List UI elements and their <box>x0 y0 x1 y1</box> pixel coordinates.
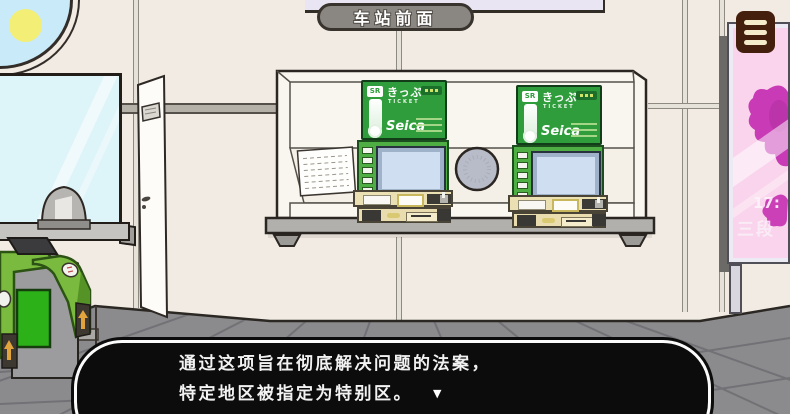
hamburger-icon <box>744 40 767 45</box>
advert-poster[interactable]: 17: 三段 <box>727 22 790 264</box>
receipt-slot[interactable] <box>561 217 593 227</box>
ticket-label: TICKET <box>388 99 420 105</box>
coin-slot[interactable] <box>387 213 400 218</box>
dome-object[interactable] <box>38 187 90 229</box>
location-sign-label: 车站前面 <box>353 5 437 29</box>
station-scene: SR きっぷ TICKET Seica SR きっぷ <box>0 0 790 414</box>
machine-lower-panel <box>512 212 606 228</box>
bill-slot[interactable] <box>397 194 424 207</box>
advance-cursor-icon: ▼ <box>433 382 444 406</box>
speaker-circle[interactable] <box>456 148 498 190</box>
dialog-box[interactable]: 通过这项旨在彻底解决问题的法案， 特定地区被指定为特别区。▼ <box>74 340 711 414</box>
sr-badge: SR <box>522 91 538 102</box>
machine-screen[interactable] <box>531 151 601 200</box>
ticket-gates[interactable] <box>0 238 90 378</box>
machine-screen[interactable] <box>376 146 446 195</box>
change-tray[interactable] <box>437 209 451 221</box>
coin-slot[interactable] <box>542 218 555 223</box>
ic-reader-icon <box>0 291 11 307</box>
hamburger-icon <box>744 20 767 25</box>
poster-leg <box>729 264 742 314</box>
card-slot[interactable] <box>582 199 606 209</box>
door-sign-plate <box>142 103 160 121</box>
ticket-slot[interactable] <box>518 200 546 210</box>
poster-caption: 三段 <box>737 215 775 240</box>
fare-table-paper[interactable] <box>297 147 355 196</box>
machine-slot-panel <box>508 195 608 212</box>
ticket-label: TICKET <box>543 104 575 110</box>
gate-display <box>17 290 50 347</box>
card-slot[interactable] <box>427 194 451 204</box>
machine-slot-panel <box>353 190 453 207</box>
mini-badge <box>576 91 597 100</box>
fine-print-lines <box>571 123 597 140</box>
staff-door[interactable] <box>138 76 167 317</box>
kippu-label: きっぷ <box>542 89 578 105</box>
menu-button[interactable] <box>736 11 775 53</box>
seica-logo-icon <box>523 129 537 143</box>
machine-lower-panel <box>357 207 451 223</box>
ticket-machine-right[interactable]: SR きっぷ TICKET Seica <box>508 83 608 229</box>
bill-slot[interactable] <box>552 199 579 212</box>
coin-return[interactable] <box>517 215 536 226</box>
ticket-slot[interactable] <box>363 195 391 205</box>
change-tray[interactable] <box>592 214 606 226</box>
coin-return[interactable] <box>362 210 381 221</box>
poster-art: 17: 三段 <box>733 28 788 258</box>
ticket-machine-left[interactable]: SR きっぷ TICKET Seica <box>353 78 453 224</box>
fine-print-lines <box>416 118 442 135</box>
machine-sign: SR きっぷ TICKET Seica <box>361 80 447 140</box>
dialog-line-2: 特定地区被指定为特别区。▼ <box>179 382 678 408</box>
receipt-slot[interactable] <box>406 212 438 222</box>
hamburger-icon <box>744 30 767 35</box>
dialog-line-1: 通过这项旨在彻底解决问题的法案， <box>179 352 678 376</box>
kippu-label: きっぷ <box>387 84 423 100</box>
location-sign: 车站前面 <box>317 3 474 31</box>
seica-logo-icon <box>368 124 382 138</box>
machine-sign: SR きっぷ TICKET Seica <box>516 85 602 145</box>
poster-time-text: 17: <box>753 194 780 212</box>
sr-badge: SR <box>367 86 383 97</box>
mini-badge <box>421 86 442 95</box>
